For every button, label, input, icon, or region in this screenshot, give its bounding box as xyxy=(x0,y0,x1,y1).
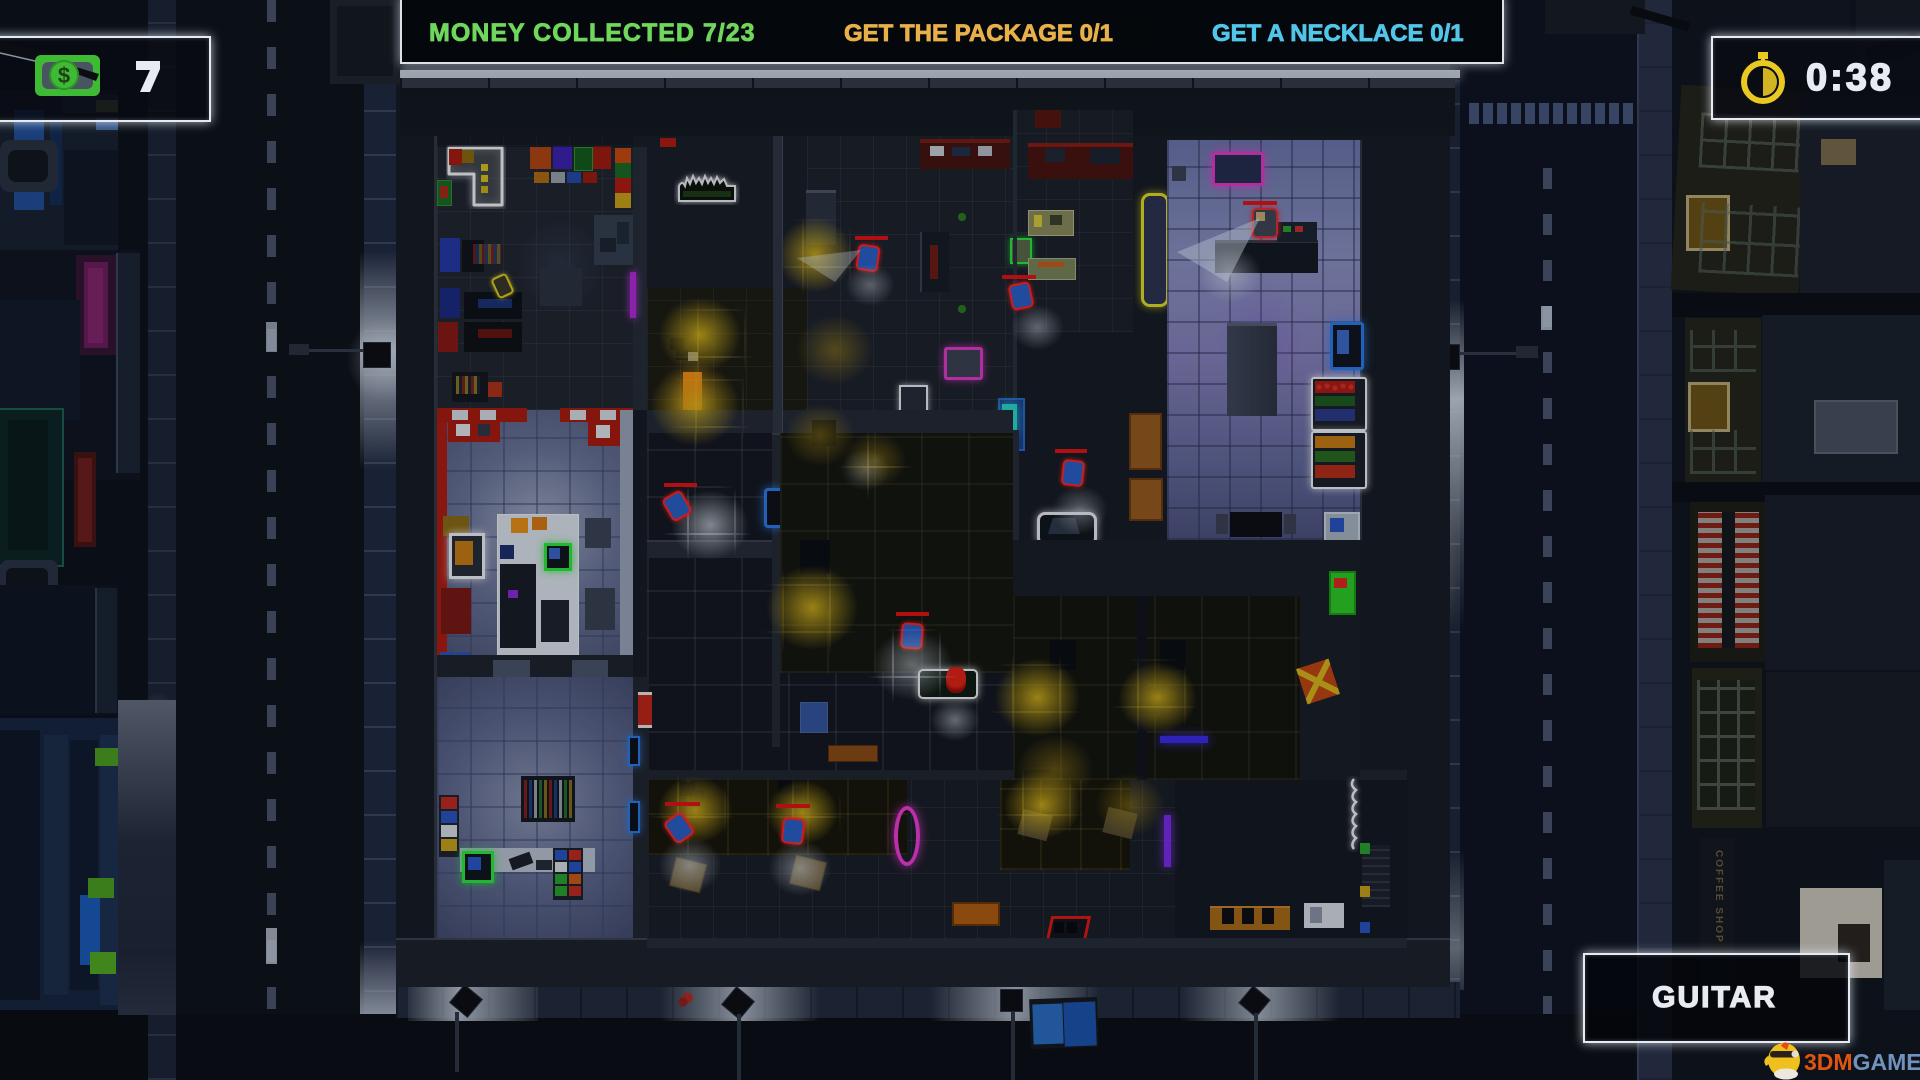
svg-text:$: $ xyxy=(58,63,70,88)
